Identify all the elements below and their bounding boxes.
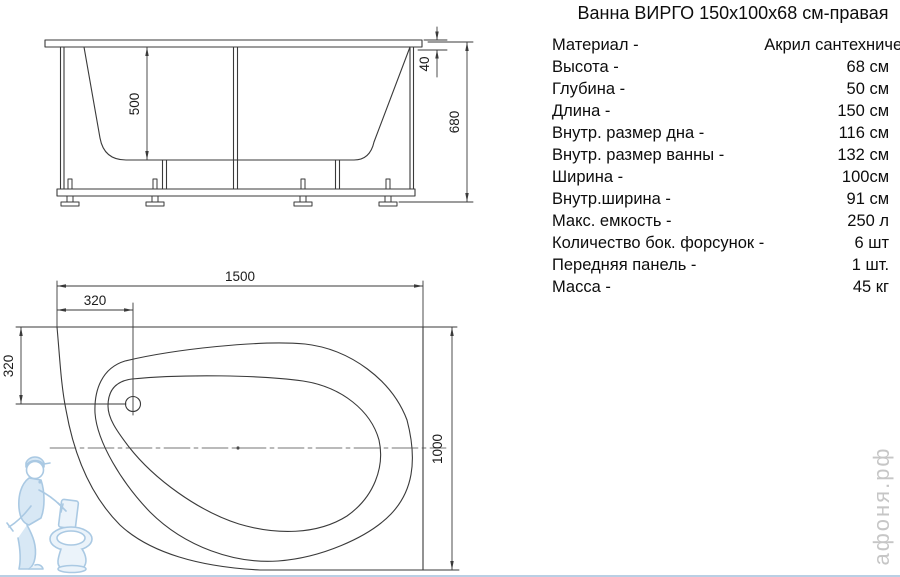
dim-rim-40: 40 [417, 27, 447, 77]
plumber-watermark-icon [7, 457, 92, 573]
base-frame-bar [57, 189, 415, 196]
support-struts [163, 160, 340, 189]
dim-drain-x-320: 320 [58, 293, 134, 415]
frame-left [61, 47, 65, 189]
tub-rim-contour [95, 343, 412, 561]
site-watermark: афоня.рф [869, 436, 895, 576]
leg-bolts [68, 179, 390, 189]
adjustable-feet [61, 196, 397, 206]
center-mark [236, 446, 239, 449]
svg-text:1000: 1000 [430, 434, 445, 464]
frame-center [234, 47, 238, 189]
svg-text:320: 320 [84, 293, 107, 308]
tub-rim [45, 40, 422, 47]
svg-text:500: 500 [127, 93, 142, 116]
plan-view-drawing [57, 327, 423, 570]
tub-bottom-contour [108, 376, 381, 532]
front-view-drawing [45, 40, 422, 206]
dim-length-1500: 1500 [57, 269, 423, 327]
tub-outer-contour [57, 327, 423, 570]
svg-text:680: 680 [447, 111, 462, 134]
svg-text:1500: 1500 [225, 269, 255, 284]
bathtub-spec-sheet: Ванна ВИРГО 150x100x68 см-правая Материа… [0, 0, 900, 577]
technical-drawing: 500 40 680 [0, 0, 900, 577]
frame-right [410, 47, 414, 189]
dim-depth-500: 500 [127, 48, 147, 160]
dim-width-1000: 1000 [423, 327, 459, 570]
svg-text:40: 40 [417, 56, 432, 71]
centerline [50, 446, 446, 449]
svg-text:320: 320 [1, 355, 16, 378]
